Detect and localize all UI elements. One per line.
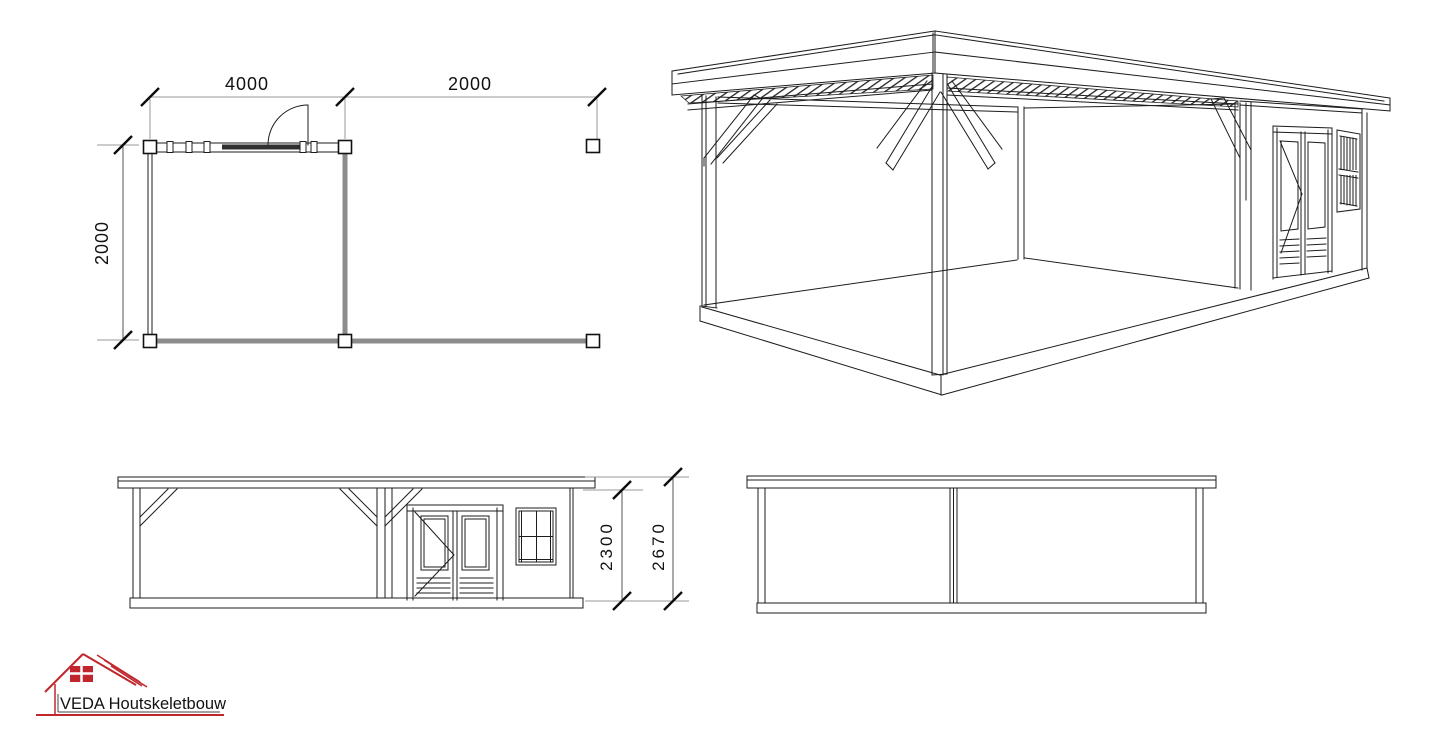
rear-base <box>757 603 1206 613</box>
perspective-view <box>672 31 1390 395</box>
company-logo: VEDA Houtskeletbouw <box>36 654 226 715</box>
dimension-label-2000-side: 2000 <box>92 221 112 265</box>
plan-door-swing <box>268 105 308 145</box>
front-roof <box>118 477 595 488</box>
rear-roof <box>747 476 1216 488</box>
floor-plan-view: 4000 2000 2000 <box>92 74 606 349</box>
dimension-label-2670: 2670 <box>649 521 668 571</box>
dimension-label-2000-top: 2000 <box>448 74 492 94</box>
perspective-back-post <box>1018 107 1024 259</box>
front-elevation-view: 2300 2670 <box>118 468 689 610</box>
front-dimensions: 2300 2670 <box>583 468 689 610</box>
plan-dimension-left: 2000 <box>92 136 139 349</box>
perspective-base-frame <box>700 258 1369 395</box>
perspective-shed <box>1211 98 1367 290</box>
perspective-shed-doors <box>1273 126 1332 279</box>
front-window <box>516 508 556 565</box>
drawing-canvas: 4000 2000 2000 <box>0 0 1450 740</box>
dimension-label-2300: 2300 <box>597 521 616 571</box>
front-posts-braces <box>133 488 573 598</box>
technical-drawing-sheet: 4000 2000 2000 <box>0 0 1450 740</box>
rear-elevation-view <box>747 476 1216 613</box>
plan-wall-left <box>148 154 152 334</box>
plan-dimension-top: 4000 2000 <box>141 74 606 141</box>
plan-posts <box>144 140 600 348</box>
perspective-left-post <box>701 95 777 308</box>
front-door <box>407 505 503 600</box>
perspective-shed-window <box>1337 130 1360 212</box>
rear-posts <box>758 488 1203 603</box>
logo-company-name: VEDA Houtskeletbouw <box>60 695 226 713</box>
front-base <box>130 598 583 608</box>
plan-wall-top-window <box>157 142 338 153</box>
dimension-label-4000: 4000 <box>225 74 269 94</box>
perspective-middle-post <box>877 73 1002 375</box>
